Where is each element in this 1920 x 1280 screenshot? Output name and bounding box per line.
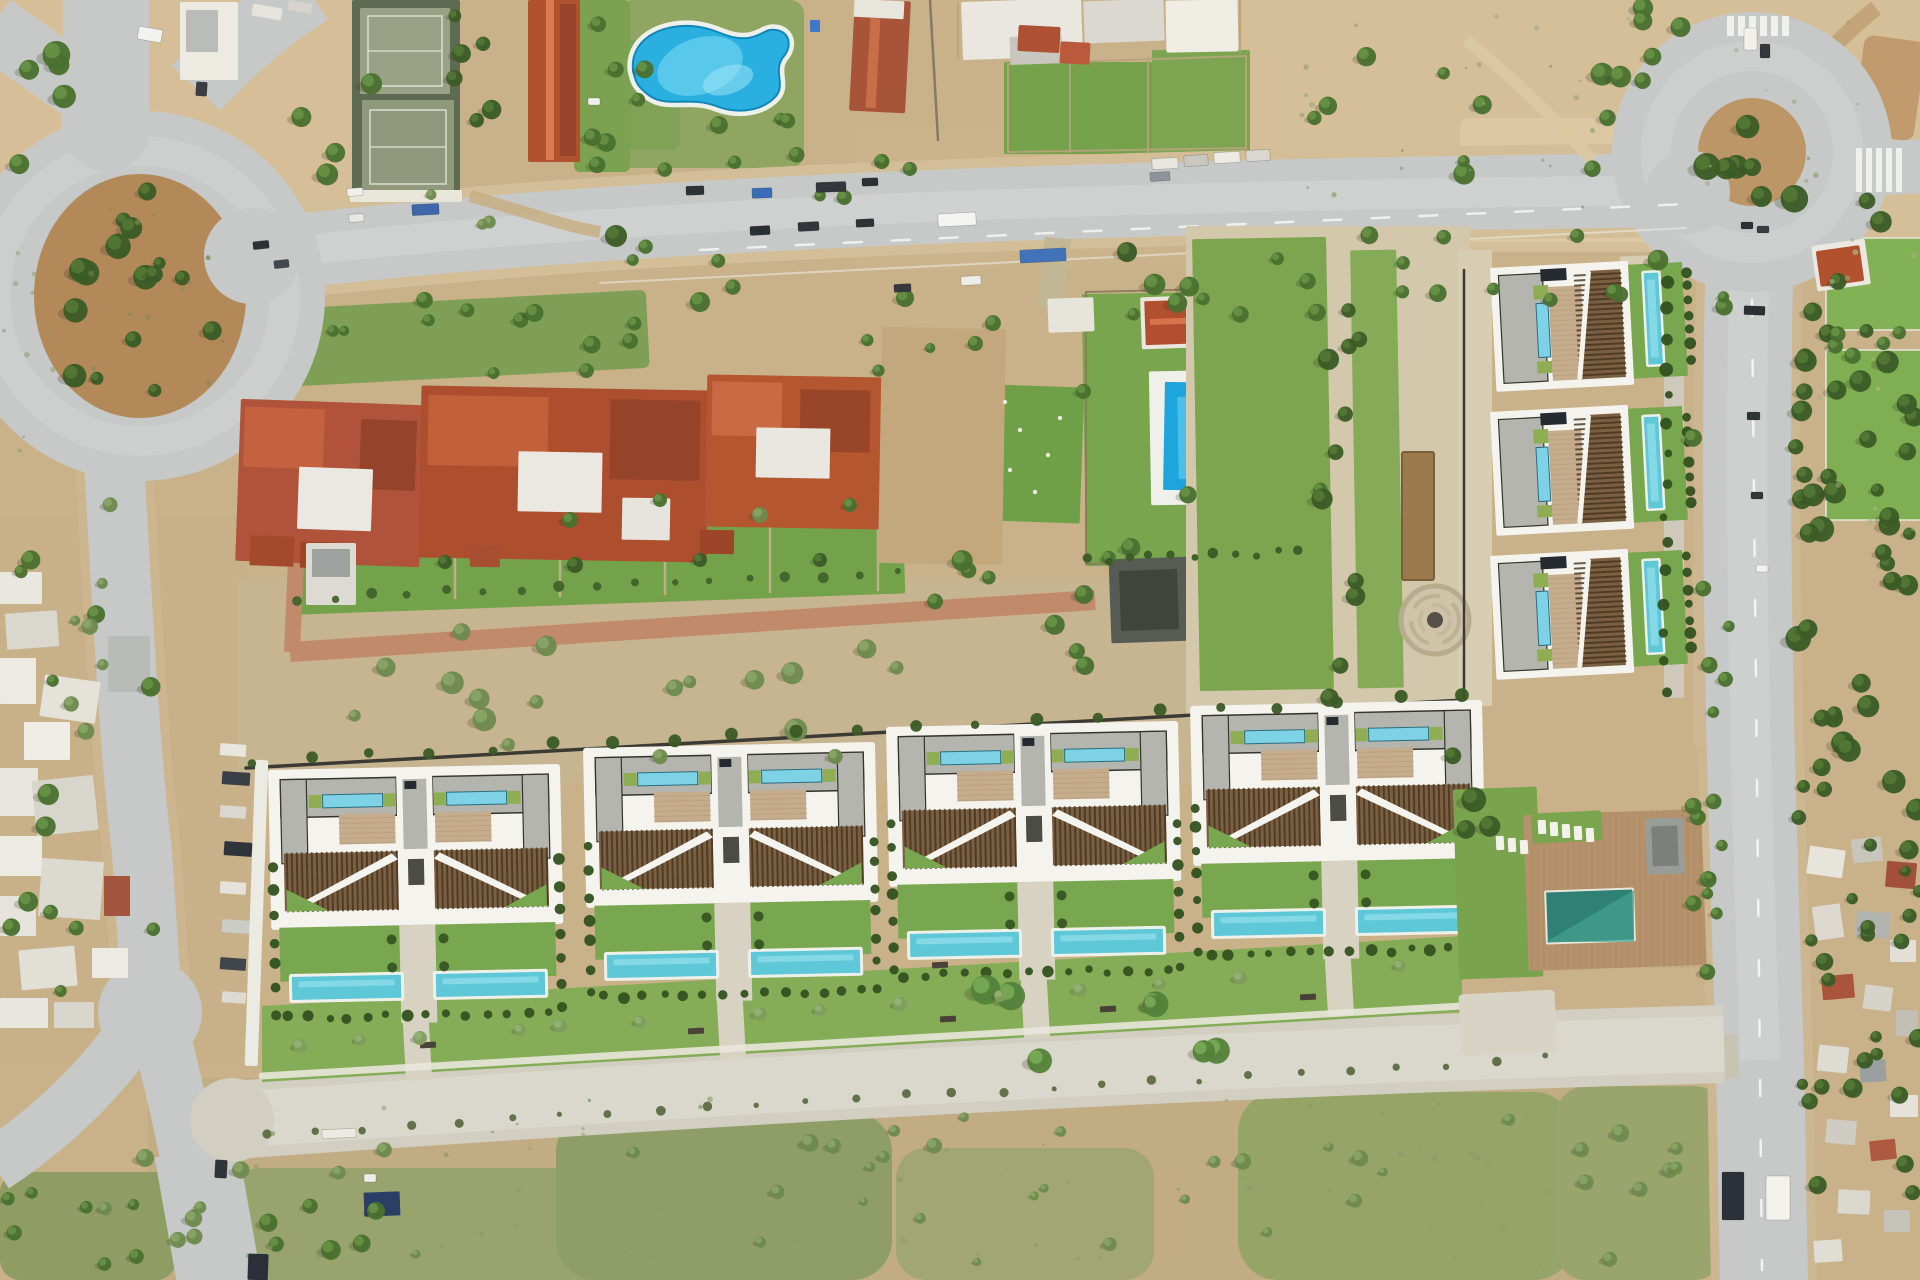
vehicle [1757,226,1769,233]
vehicle [1756,565,1768,572]
vehicle [1020,248,1067,263]
vehicle [750,225,770,235]
villa-duplex-block-3 [883,721,1186,984]
vehicle [1744,28,1757,50]
vehicle [862,178,878,187]
vehicle [798,221,819,231]
aerial-photo-stage [0,0,1920,1280]
tennis-courts [350,0,462,202]
vehicle [961,275,981,285]
vehicle [588,98,600,105]
vehicle [1760,44,1770,58]
villa-duplex-block-1 [265,764,568,1026]
vehicle [322,1128,356,1139]
vehicle [1246,149,1271,161]
vehicle [412,203,440,215]
vehicle [752,188,772,199]
vehicle [938,212,977,227]
vehicle [1214,151,1241,163]
vehicle [274,259,290,269]
vehicle [894,284,911,293]
vehicle [253,240,270,250]
vehicle [1747,412,1760,420]
vehicle [196,82,208,97]
vehicle [1152,157,1179,169]
vehicle [816,181,846,192]
vehicle [364,1174,376,1182]
vehicle [215,1160,228,1179]
vehicle [856,219,874,228]
vehicle [1751,492,1763,499]
vehicle [248,1254,269,1280]
vehicle [349,213,365,222]
vehicle [1722,1172,1744,1220]
villa-duplex-block-2 [580,742,882,1005]
vehicle [1744,306,1765,316]
villa-duplex-block-4 [1187,700,1490,963]
aerial-orthophoto [0,0,1920,1280]
vehicle [1184,154,1209,166]
vehicle [347,187,364,196]
vehicle [1150,171,1170,181]
vehicle [1741,222,1753,229]
vehicle [1766,1176,1790,1220]
vehicle [686,186,704,196]
